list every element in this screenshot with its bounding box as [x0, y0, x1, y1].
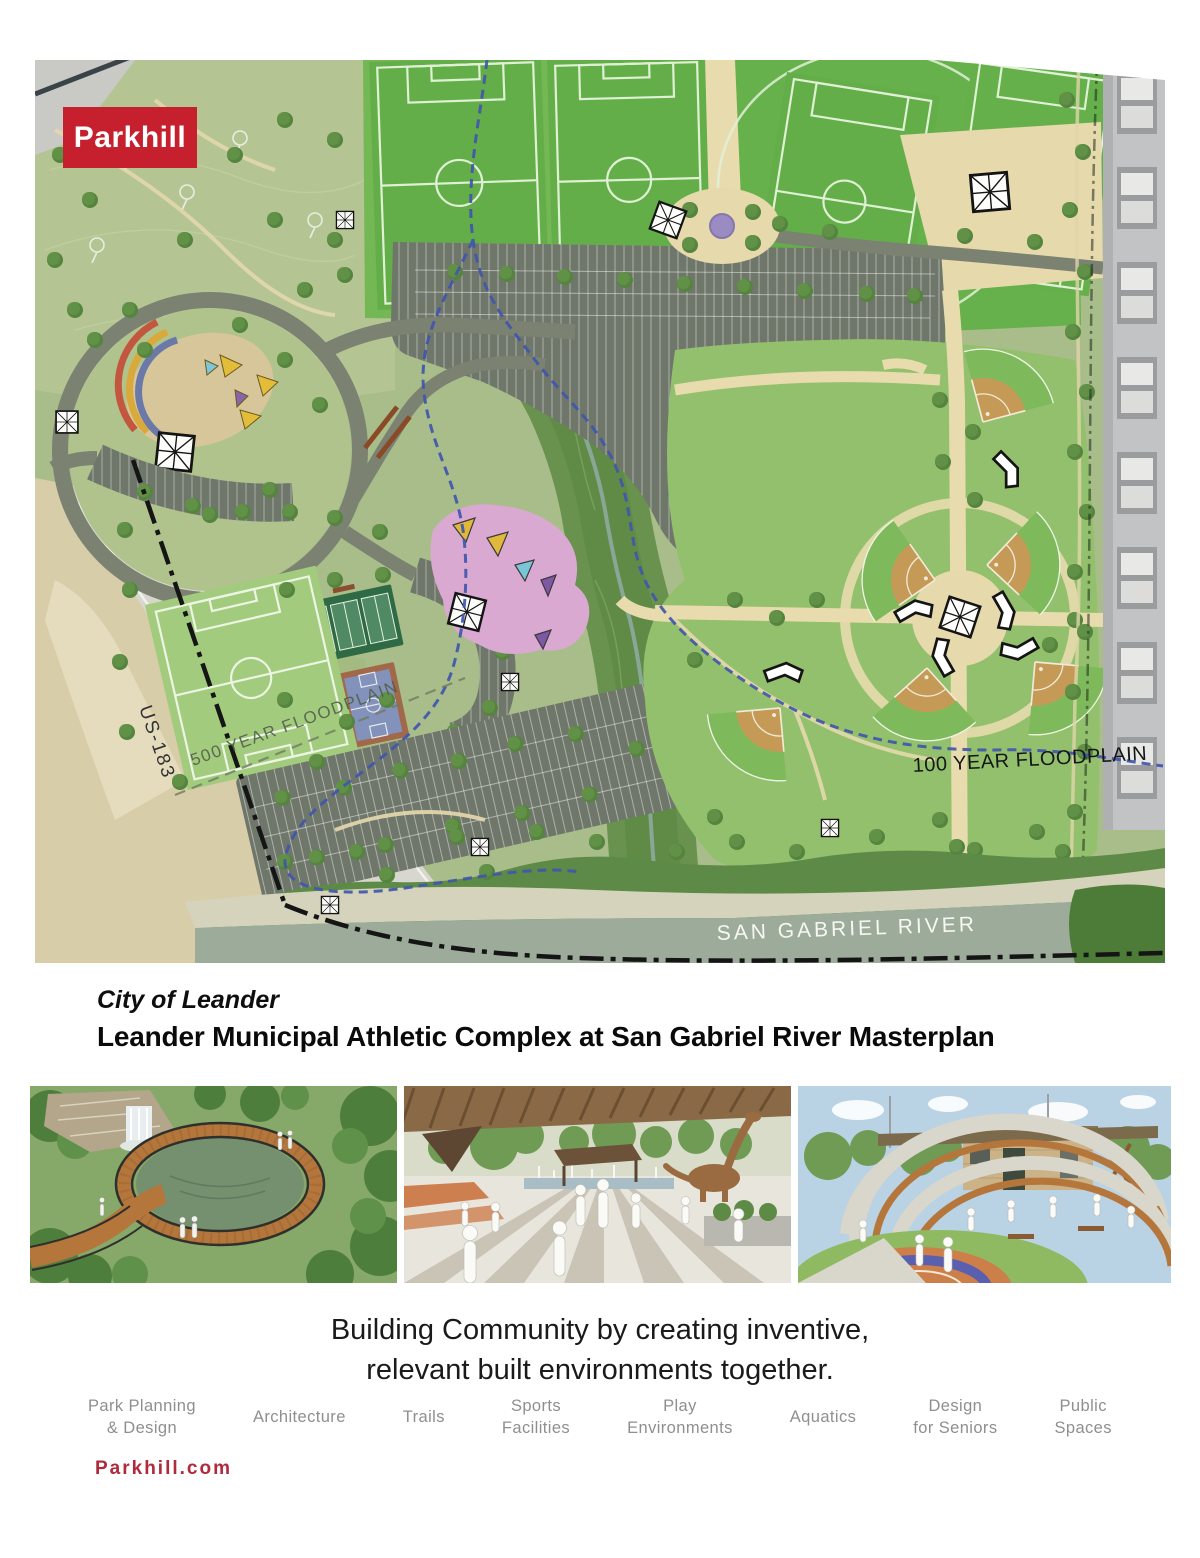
masterplan-illustration: US-183 500 YEAR FLOODPLAIN 100 YEAR FLOO… — [35, 60, 1165, 963]
parkhill-logo-text: Parkhill — [74, 121, 186, 155]
services-row: Park Planning & Design Architecture Trai… — [88, 1395, 1112, 1439]
website-link[interactable]: Parkhill.com — [95, 1458, 232, 1480]
service-aquatics: Aquatics — [790, 1406, 857, 1428]
northeast-pavilion — [970, 172, 1009, 211]
splash-pad-pavilion — [448, 593, 486, 631]
client-name: City of Leander — [97, 986, 1147, 1015]
tagline-line-1: Building Community by creating inventive… — [0, 1310, 1200, 1350]
service-trails: Trails — [403, 1406, 445, 1428]
trail-pavilion-d — [821, 819, 838, 836]
trail-pavilion-c — [471, 838, 488, 855]
playground-pavilion — [156, 433, 195, 472]
rendering-amphitheater — [798, 1086, 1171, 1283]
tagline-line-2: relevant built environments together. — [0, 1350, 1200, 1390]
flyer-page: US-183 500 YEAR FLOODPLAIN 100 YEAR FLOO… — [0, 0, 1200, 1558]
trail-pavilion-b — [321, 896, 338, 913]
service-public-spaces: Public Spaces — [1054, 1395, 1111, 1439]
trail-pavilion-a — [501, 673, 518, 690]
tagline: Building Community by creating inventive… — [0, 1310, 1200, 1390]
service-park-planning-design: Park Planning & Design — [88, 1395, 196, 1439]
masterplan-map: US-183 500 YEAR FLOODPLAIN 100 YEAR FLOO… — [35, 60, 1165, 963]
west-pavilion — [56, 411, 78, 433]
service-play-environments: Play Environments — [627, 1395, 733, 1439]
baseball-complex — [620, 290, 1121, 901]
trail-pavilion-e — [336, 211, 353, 228]
rendering-thumbnails — [30, 1086, 1171, 1283]
parkhill-logo: Parkhill — [63, 107, 197, 168]
project-title: Leander Municipal Athletic Complex at Sa… — [97, 1021, 1147, 1053]
service-architecture: Architecture — [253, 1406, 346, 1428]
title-block: City of Leander Leander Municipal Athlet… — [97, 986, 1147, 1053]
rendering-waterfall-overlook — [30, 1086, 397, 1283]
rendering-plaza — [404, 1086, 791, 1283]
service-sports-facilities: Sports Facilities — [502, 1395, 570, 1439]
seat-planter — [704, 1216, 791, 1246]
service-design-for-seniors: Design for Seniors — [913, 1395, 997, 1439]
